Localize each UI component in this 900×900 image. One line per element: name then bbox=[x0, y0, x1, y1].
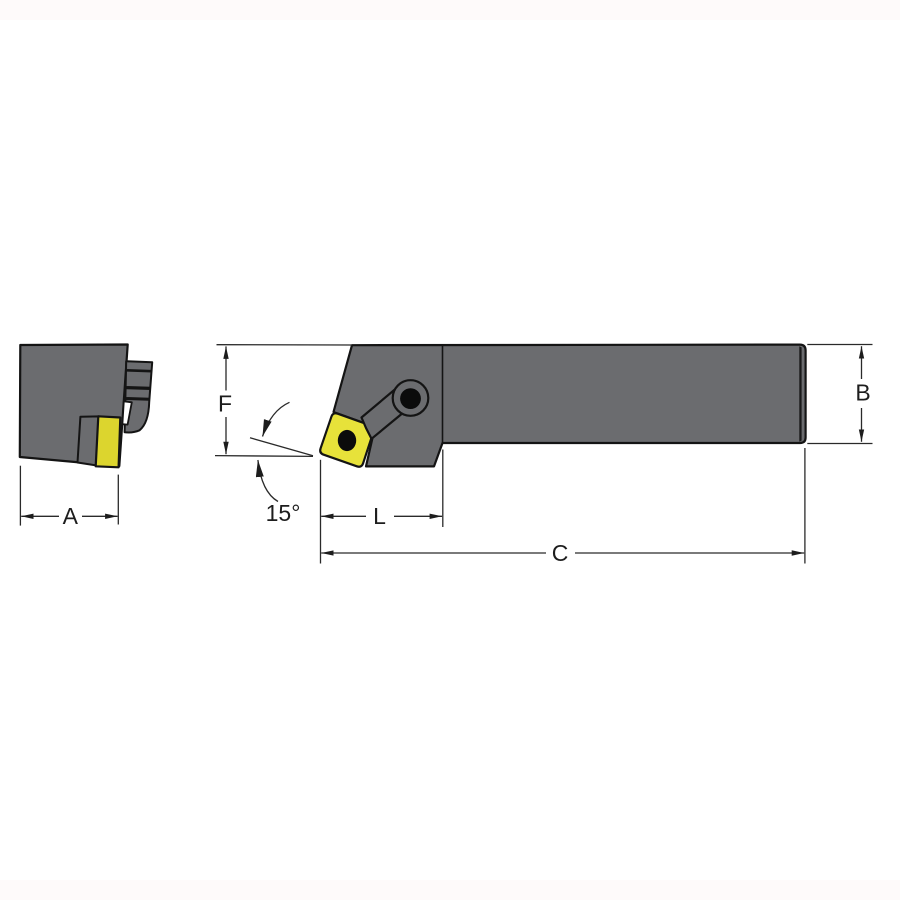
svg-text:A: A bbox=[63, 503, 79, 529]
svg-text:B: B bbox=[855, 380, 870, 406]
svg-text:C: C bbox=[552, 540, 569, 566]
svg-text:F: F bbox=[218, 391, 232, 417]
svg-text:15°: 15° bbox=[266, 500, 301, 526]
svg-text:L: L bbox=[373, 503, 386, 529]
